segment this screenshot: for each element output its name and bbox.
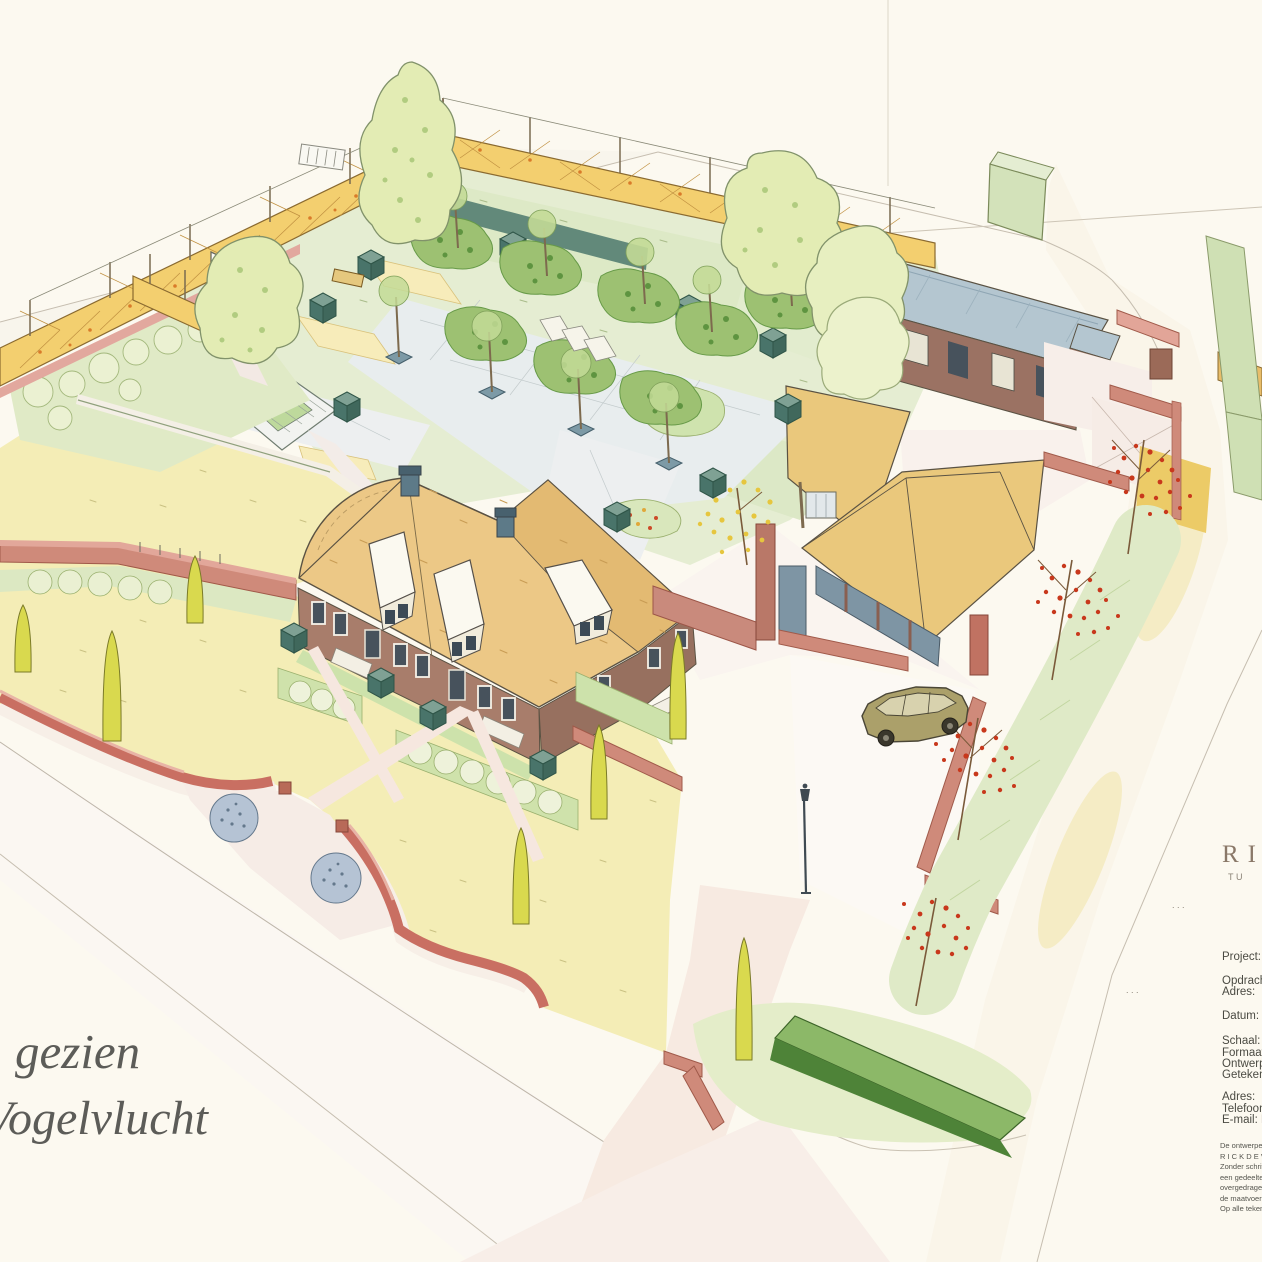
svg-text:TU: TU bbox=[1228, 872, 1245, 882]
svg-text:een gedeelte: een gedeelte bbox=[1220, 1173, 1262, 1182]
svg-text:. . .: . . . bbox=[1172, 900, 1185, 910]
svg-text:Getekend:: Getekend: bbox=[1222, 1069, 1262, 1081]
svg-text:. . .: . . . bbox=[1126, 985, 1139, 995]
svg-text:Datum:: Datum: bbox=[1222, 1010, 1259, 1022]
svg-text:R I C K D E V: R I C K D E V bbox=[1220, 1152, 1262, 1161]
svg-text:Schaal:: Schaal: bbox=[1222, 1035, 1260, 1047]
svg-text:Project:: Project: bbox=[1222, 951, 1261, 963]
svg-text:Adres:: Adres: bbox=[1222, 986, 1255, 998]
svg-text:overgedragen: overgedragen bbox=[1220, 1183, 1262, 1192]
svg-text:Op alle tekeni: Op alle tekeni bbox=[1220, 1204, 1262, 1213]
svg-text:RI: RI bbox=[1222, 841, 1262, 868]
svg-text:Vogelvlucht: Vogelvlucht bbox=[0, 1092, 210, 1145]
svg-text:gezien: gezien bbox=[15, 1024, 140, 1079]
svg-text:Adres:: Adres: bbox=[1222, 1091, 1255, 1103]
svg-text:de maatvoeri: de maatvoeri bbox=[1220, 1194, 1262, 1203]
svg-text:E-mail: RIC: E-mail: RIC bbox=[1222, 1114, 1262, 1126]
svg-text:Zonder schrif: Zonder schrif bbox=[1220, 1162, 1262, 1171]
svg-text:De ontwerpen: De ontwerpen bbox=[1220, 1141, 1262, 1150]
